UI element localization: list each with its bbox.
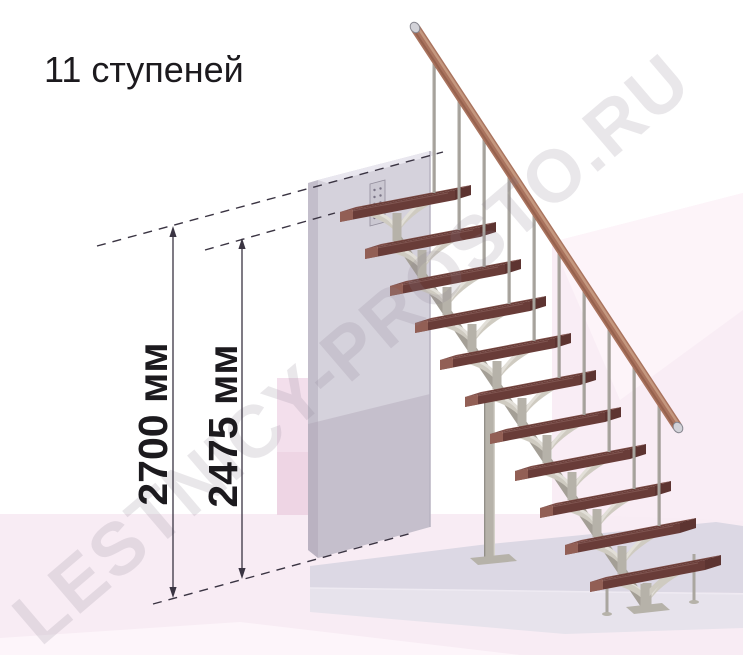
- dimension-label-2700: 2700 мм: [130, 342, 176, 505]
- staircase-dimension-diagram: LESTNICY-PROSTO.RU 2700 мм 2475 мм 11 ст…: [0, 0, 743, 655]
- support-stem: [393, 213, 402, 241]
- support-stem: [568, 472, 577, 500]
- leg-foot: [689, 600, 699, 604]
- support-stem: [618, 546, 627, 574]
- support-stem: [593, 509, 602, 537]
- diagram-title: 11 ступеней: [44, 49, 244, 90]
- leg-foot: [602, 612, 612, 616]
- scene-svg: LESTNICY-PROSTO.RU 2700 мм 2475 мм 11 ст…: [0, 0, 743, 655]
- support-stem: [493, 361, 502, 389]
- support-stem: [468, 324, 477, 352]
- support-stem: [543, 435, 552, 463]
- support-stem: [518, 398, 527, 426]
- dimension-label-2475: 2475 мм: [200, 344, 246, 507]
